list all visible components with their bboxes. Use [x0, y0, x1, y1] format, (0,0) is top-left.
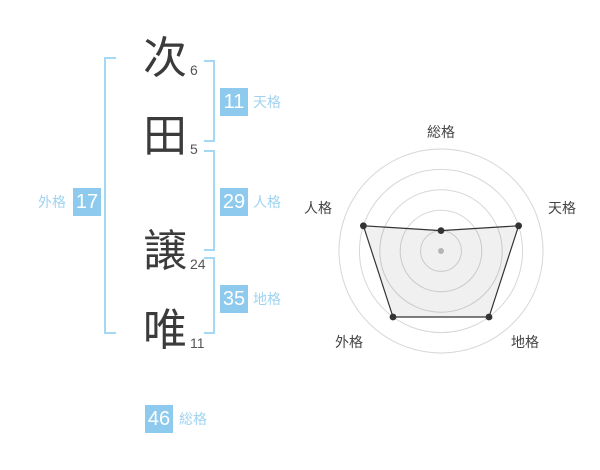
radar-axis-label-0: 総格 — [427, 124, 455, 140]
radar-point-0 — [438, 227, 445, 234]
radar-point-4 — [360, 222, 367, 229]
radar-point-3 — [390, 314, 397, 321]
tenkaku-label: 天格 — [253, 94, 281, 110]
chikaku-value-badge: 35 — [220, 285, 248, 313]
jinkaku-value-badge: 29 — [220, 188, 248, 216]
gaikaku-label: 外格 — [18, 194, 66, 210]
chikaku-label: 地格 — [253, 291, 281, 307]
radar-chart: 総格天格地格外格人格 — [296, 106, 586, 396]
name-char-2: 田 — [143, 114, 187, 160]
radar-point-2 — [486, 314, 493, 321]
radar-axis-label-2: 地格 — [511, 334, 539, 350]
center-dot — [438, 248, 444, 254]
name-char-4: 唯 — [143, 308, 187, 354]
jinkaku-label: 人格 — [253, 194, 281, 210]
radar-axis-label-4: 人格 — [304, 200, 332, 216]
chikaku-bracket — [204, 257, 215, 334]
radar-axis-label-1: 天格 — [548, 200, 576, 216]
gaikaku-value-badge: 17 — [73, 188, 101, 216]
tenkaku-bracket — [204, 60, 215, 142]
gaikaku-bracket — [104, 57, 116, 334]
soukaku-label: 総格 — [179, 411, 207, 427]
radar-point-1 — [515, 222, 522, 229]
stroke-count-4: 11 — [190, 336, 205, 351]
stroke-count-1: 6 — [190, 63, 198, 78]
stroke-count-2: 5 — [190, 142, 198, 157]
jinkaku-bracket — [204, 150, 215, 251]
name-char-3: 譲 — [143, 229, 187, 275]
soukaku-value-badge: 46 — [145, 405, 173, 433]
radar-axis-label-3: 外格 — [335, 334, 363, 350]
name-char-1: 次 — [143, 36, 187, 82]
tenkaku-value-badge: 11 — [220, 88, 248, 116]
radar-polygon — [363, 226, 518, 317]
seimei-handan-result-panel: 次 田 譲 唯 6 5 24 11 11 天格 29 人格 35 地格 外格 1… — [0, 0, 600, 470]
